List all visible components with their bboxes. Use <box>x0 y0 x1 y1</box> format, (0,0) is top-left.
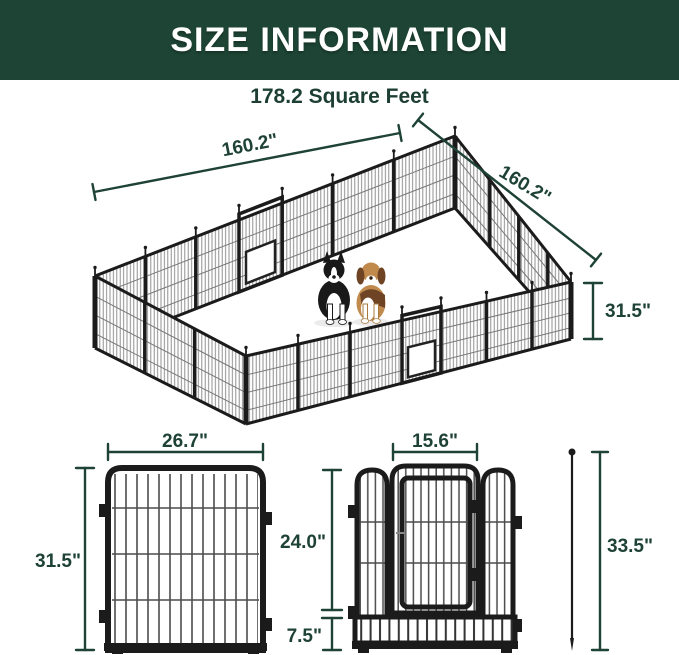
door-height-label: 24.0" <box>280 532 326 553</box>
dimension-door-width: 15.6" <box>393 431 477 460</box>
stake-length-label: 33.5" <box>607 536 653 557</box>
connector-tab <box>99 504 108 517</box>
header-banner: SIZE INFORMATION <box>0 0 679 80</box>
fence-wall-front <box>246 282 571 424</box>
side-left-length-label: 160.2" <box>220 130 280 161</box>
single-panel-drawing <box>99 468 272 654</box>
size-information-infographic: SIZE INFORMATION 178.2 Square Feet <box>0 0 679 655</box>
door-hinge <box>471 500 480 513</box>
page-title: SIZE INFORMATION <box>170 21 508 60</box>
connector-tab <box>513 516 522 529</box>
gate-panel-diagram: 24.0" 7.5" 15.6" <box>280 431 522 653</box>
connector-tab <box>263 618 272 631</box>
dimension-door-height: 24.0" 7.5" <box>280 470 342 650</box>
connector-tab <box>99 610 108 623</box>
gate-door <box>402 478 470 607</box>
door-width-label: 15.6" <box>412 431 458 452</box>
connector-tab <box>348 505 357 518</box>
ground-stake-diagram: 33.5" <box>569 449 654 652</box>
playpen-isometric-diagram: 160.2" 160.2" 31.5" <box>93 114 652 424</box>
dimension-pen-height: 31.5" <box>584 283 651 339</box>
beagle-icon <box>357 263 386 324</box>
panel-height-label: 31.5" <box>35 551 81 572</box>
ground-stake-drawing <box>569 449 576 652</box>
bottom-height-label: 7.5" <box>287 626 322 647</box>
connector-tab <box>263 512 272 525</box>
connector-tab <box>348 606 357 619</box>
dimension-panel-height: 31.5" <box>35 468 94 650</box>
dimension-stake-length: 33.5" <box>592 452 653 650</box>
dimension-panel-width: 26.7" <box>108 431 263 460</box>
connector-tab <box>513 619 522 632</box>
area-label: 178.2 Square Feet <box>0 85 679 109</box>
door-hinge <box>471 568 480 581</box>
panel-width-label: 26.7" <box>162 431 208 452</box>
gate-panel-drawing <box>348 466 522 653</box>
pen-height-label: 31.5" <box>605 301 651 322</box>
border-collie-icon <box>318 251 350 325</box>
single-panel-diagram: 26.7" 31.5" <box>35 431 272 654</box>
